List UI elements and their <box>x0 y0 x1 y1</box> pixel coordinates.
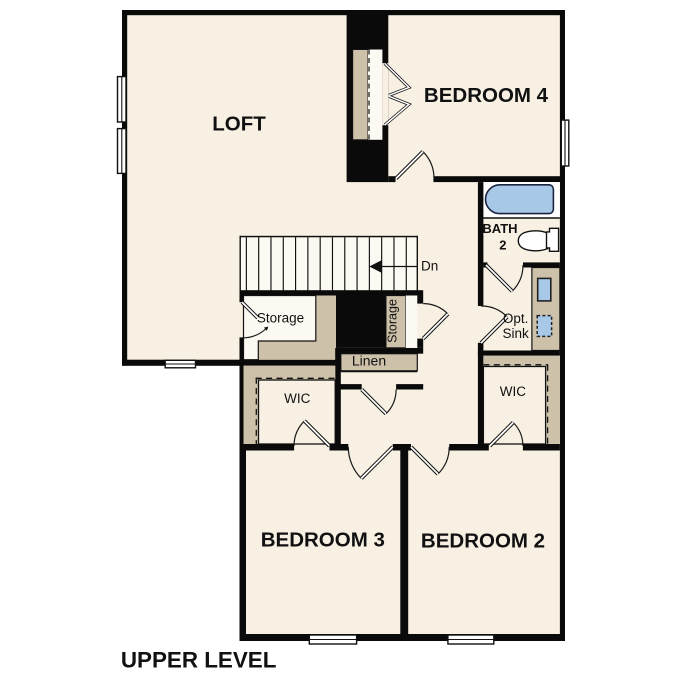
svg-text:UPPER LEVEL: UPPER LEVEL <box>121 648 277 673</box>
svg-text:Opt.: Opt. <box>503 311 529 326</box>
svg-text:Linen: Linen <box>352 353 386 369</box>
svg-text:Storage: Storage <box>386 299 400 343</box>
svg-text:WIC: WIC <box>284 391 310 406</box>
svg-text:2: 2 <box>499 238 506 253</box>
svg-text:BATH: BATH <box>482 221 517 236</box>
svg-text:Storage: Storage <box>257 311 304 326</box>
svg-text:Sink: Sink <box>502 326 529 341</box>
svg-text:BEDROOM 3: BEDROOM 3 <box>261 529 385 552</box>
svg-text:BEDROOM 4: BEDROOM 4 <box>424 84 549 107</box>
svg-text:LOFT: LOFT <box>212 113 266 136</box>
svg-text:WIC: WIC <box>500 384 526 399</box>
svg-text:Dn: Dn <box>421 258 438 273</box>
svg-text:BEDROOM 2: BEDROOM 2 <box>421 530 545 553</box>
